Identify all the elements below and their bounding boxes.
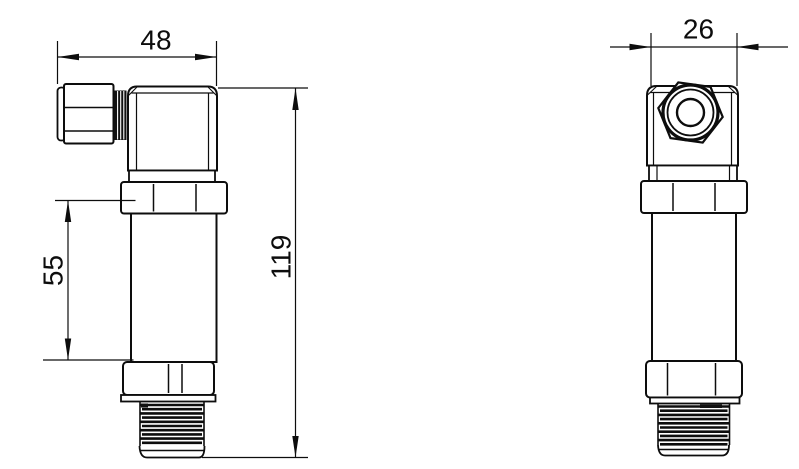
thread-ridges [658,407,730,445]
arrowhead-right [195,54,217,60]
cylinder-body-front [652,213,736,361]
drawing-canvas: 48 55 119 [0,0,799,469]
thread-ridges [140,405,204,443]
neck-outline [649,166,737,182]
housing-outline [128,87,217,171]
arrowhead-left [58,54,80,60]
side-view: 48 55 119 [38,25,309,458]
thread-runout [658,445,729,456]
arrowhead-right [630,44,652,50]
dimension-55: 55 [38,201,136,361]
dimension-55-label: 55 [38,255,69,286]
arrowhead-up [65,201,71,223]
thread-runout [140,446,205,458]
housing-neck-side [129,171,215,183]
pressure-port-thread-front [658,404,730,456]
dimension-119-label: 119 [266,235,297,280]
technical-drawing: 48 55 119 [0,0,799,469]
thread-start-mark [141,404,148,408]
cable-gland-side [58,84,127,144]
arrowhead-up [292,88,298,110]
dimension-48-label: 48 [140,25,171,56]
upper-hex-nut-side [121,182,227,214]
upper-hex-outline [641,181,747,213]
arrowhead-down [292,436,298,458]
thread-start-mark [700,405,722,409]
washer-flange-front [650,398,740,404]
pressure-port-thread-side [140,402,205,458]
dimension-26: 26 [610,14,788,87]
dimension-48: 48 [58,25,217,87]
dimension-26-label: 26 [683,14,714,45]
lower-hex-nut-front [646,361,742,398]
gland-outer-ring [663,85,718,140]
washer-flange-side [121,395,216,402]
arrowhead-down [65,339,71,361]
upper-hex-outline [121,182,227,214]
lower-hex-outline [646,361,742,398]
arrowhead-left [737,44,759,50]
lower-hex-nut-side [123,362,214,395]
cylinder-body-side [131,214,217,363]
upper-hex-nut-front [641,181,747,213]
connector-housing-side [128,87,217,171]
front-view: 26 [610,14,788,456]
gland-cap-body [64,84,114,144]
housing-neck-front [649,166,737,182]
